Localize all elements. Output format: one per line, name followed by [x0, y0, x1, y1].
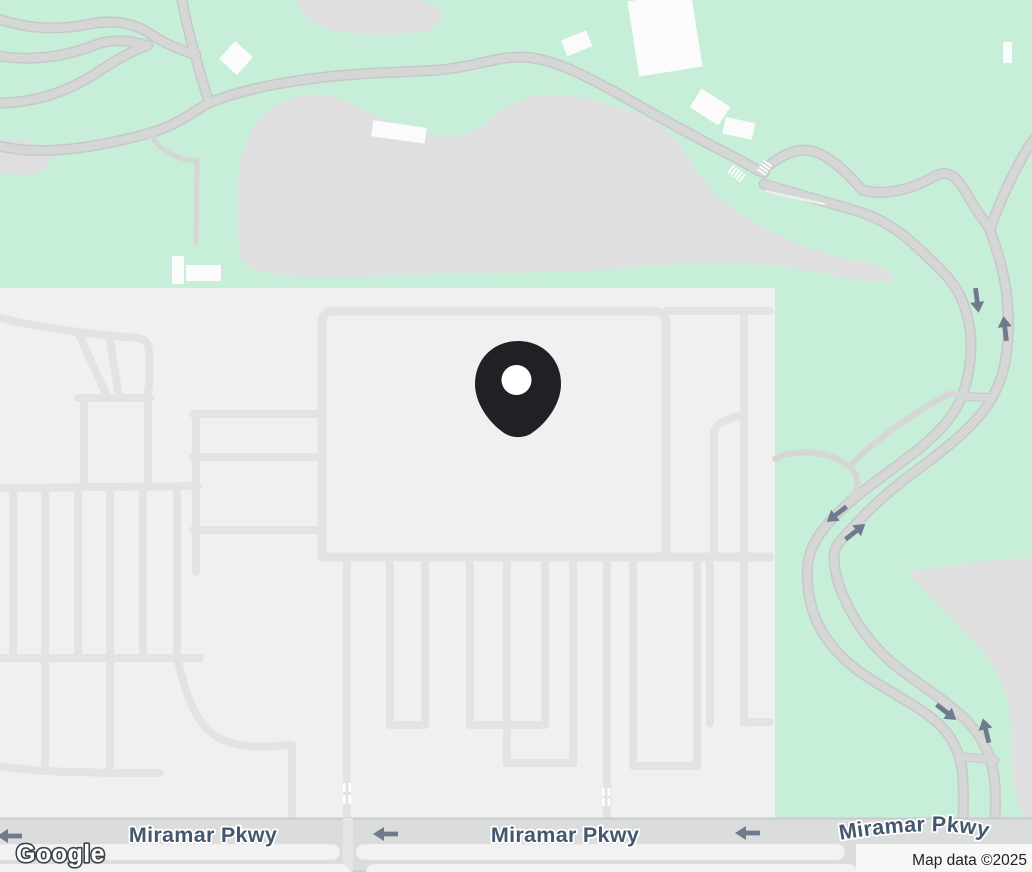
map-canvas[interactable]: Miramar Pkwy Miramar Pkwy Miramar Pkwy M… [0, 0, 1032, 872]
location-pin-hole [502, 365, 532, 395]
building [627, 0, 702, 77]
road-cross-connector-upper [962, 396, 992, 398]
building [1003, 42, 1012, 63]
google-logo[interactable]: Google [16, 840, 105, 868]
road-label-miramar-left: Miramar Pkwy [129, 823, 277, 847]
road-cross-connector-lower [963, 757, 995, 760]
building [186, 265, 221, 281]
attribution-text: Map data ©2025 [912, 852, 1027, 869]
building [172, 256, 184, 284]
road-stub-vertical [196, 160, 197, 243]
pkwy-median-pills [0, 844, 857, 872]
map-attribution: Map data ©2025 [856, 844, 1032, 872]
road-label-miramar-center: Miramar Pkwy [491, 823, 639, 847]
pkwy-crossing-street [343, 818, 353, 872]
